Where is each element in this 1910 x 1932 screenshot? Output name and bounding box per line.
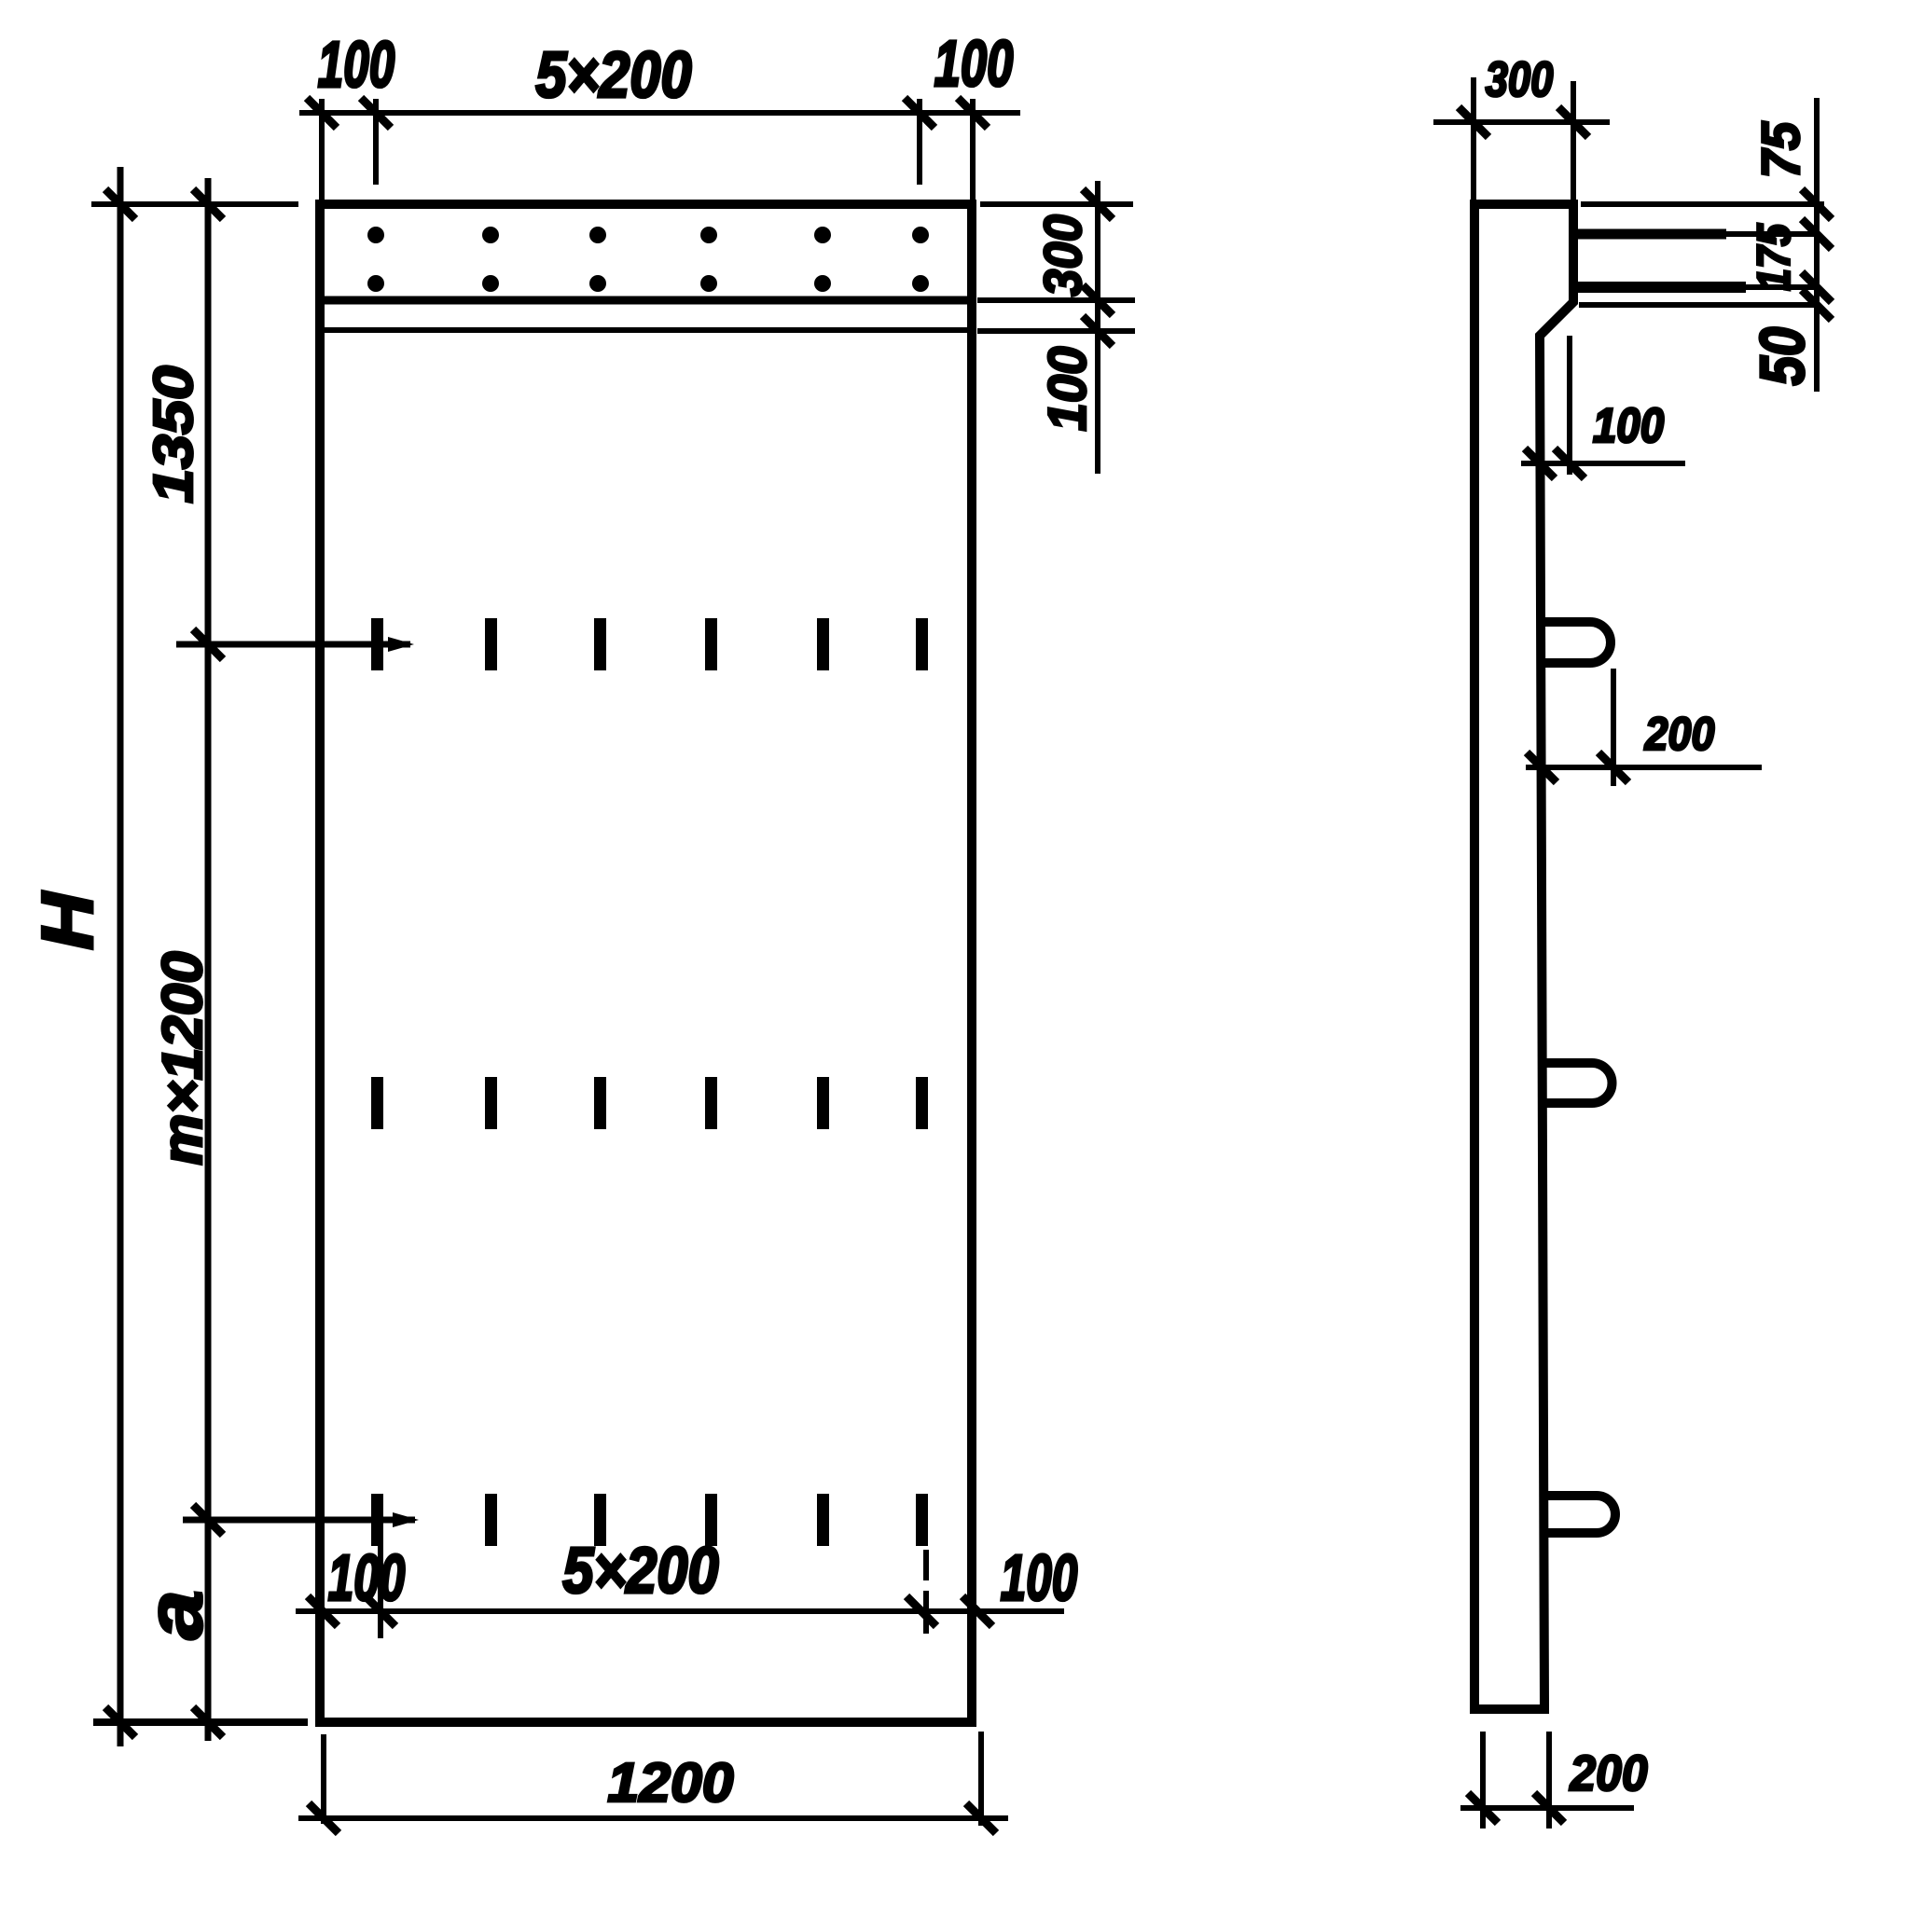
svg-text:200: 200 xyxy=(1644,709,1715,761)
svg-text:1350: 1350 xyxy=(143,366,204,504)
svg-text:100: 100 xyxy=(318,28,395,101)
svg-text:H: H xyxy=(28,890,109,950)
svg-text:175: 175 xyxy=(1748,223,1799,291)
svg-text:300: 300 xyxy=(1486,52,1554,107)
svg-text:200: 200 xyxy=(1569,1746,1647,1801)
svg-text:50: 50 xyxy=(1749,327,1819,386)
svg-text:5×200: 5×200 xyxy=(562,1534,718,1607)
svg-text:300: 300 xyxy=(1032,214,1092,297)
svg-text:1200: 1200 xyxy=(607,1752,733,1814)
svg-text:100: 100 xyxy=(1037,346,1097,431)
svg-text:75: 75 xyxy=(1751,121,1810,179)
svg-text:100: 100 xyxy=(1001,1541,1078,1614)
svg-text:m×1200: m×1200 xyxy=(151,951,214,1165)
svg-text:100: 100 xyxy=(934,27,1014,100)
svg-text:100: 100 xyxy=(328,1541,406,1614)
svg-text:5×200: 5×200 xyxy=(535,38,691,111)
svg-text:100: 100 xyxy=(1593,399,1664,452)
svg-text:a: a xyxy=(131,1590,218,1639)
